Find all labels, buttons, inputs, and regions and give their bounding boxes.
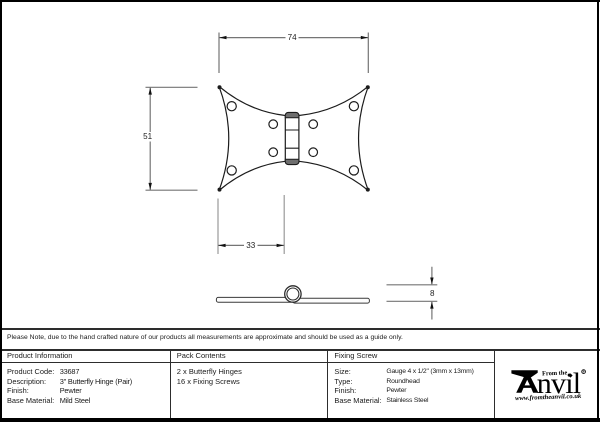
svg-text:8: 8 bbox=[430, 289, 435, 298]
svg-text:74: 74 bbox=[288, 33, 298, 42]
svg-text:33: 33 bbox=[246, 241, 256, 250]
svg-text:51: 51 bbox=[143, 132, 153, 141]
